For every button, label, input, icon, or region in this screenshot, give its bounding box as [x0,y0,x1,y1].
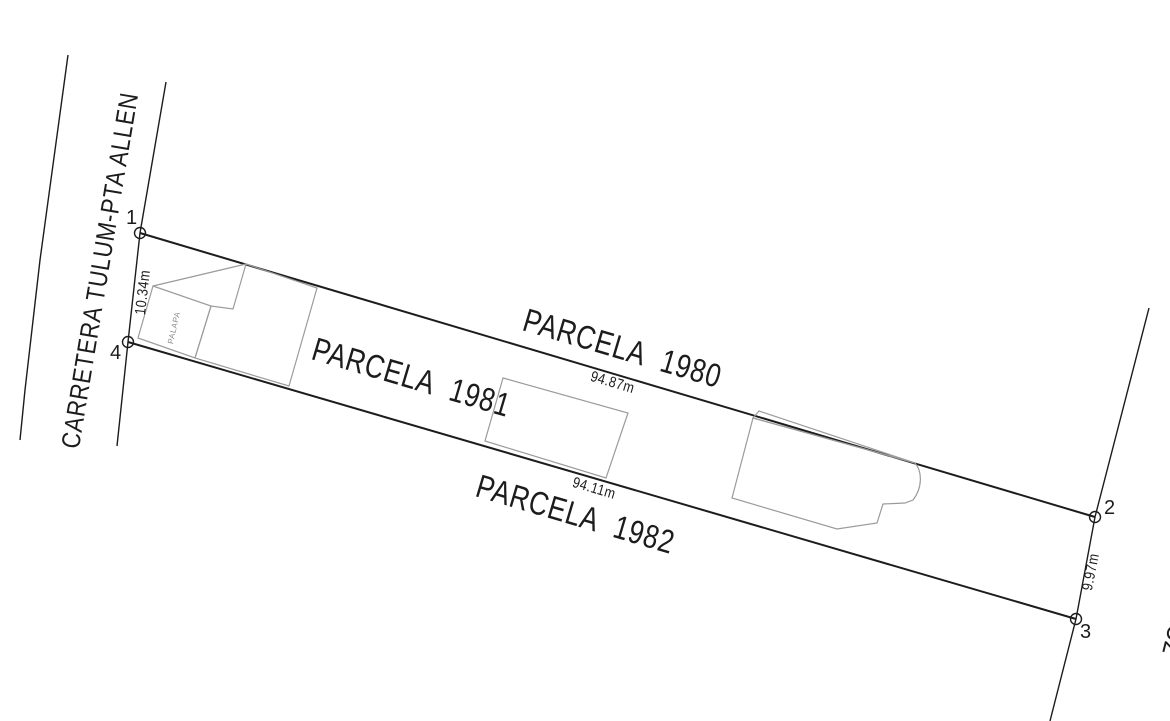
corner-number-1: 1 [126,208,137,228]
corner-markers [123,228,1101,625]
survey-drawing [0,0,1170,721]
east-building-footprint [732,418,920,529]
east-building-eave-sliver [753,411,915,463]
road-edge-west-line [20,55,68,440]
survey-plan-canvas: CARRETERA TULUM-PTA ALLEN PARCELA 1980 P… [0,0,1170,721]
corner-number-2: 2 [1104,498,1115,518]
yard-wall-line [153,264,246,286]
parcel-boundaries [128,233,1095,619]
corner-number-4: 4 [110,343,121,363]
corner-number-3: 3 [1080,622,1091,642]
